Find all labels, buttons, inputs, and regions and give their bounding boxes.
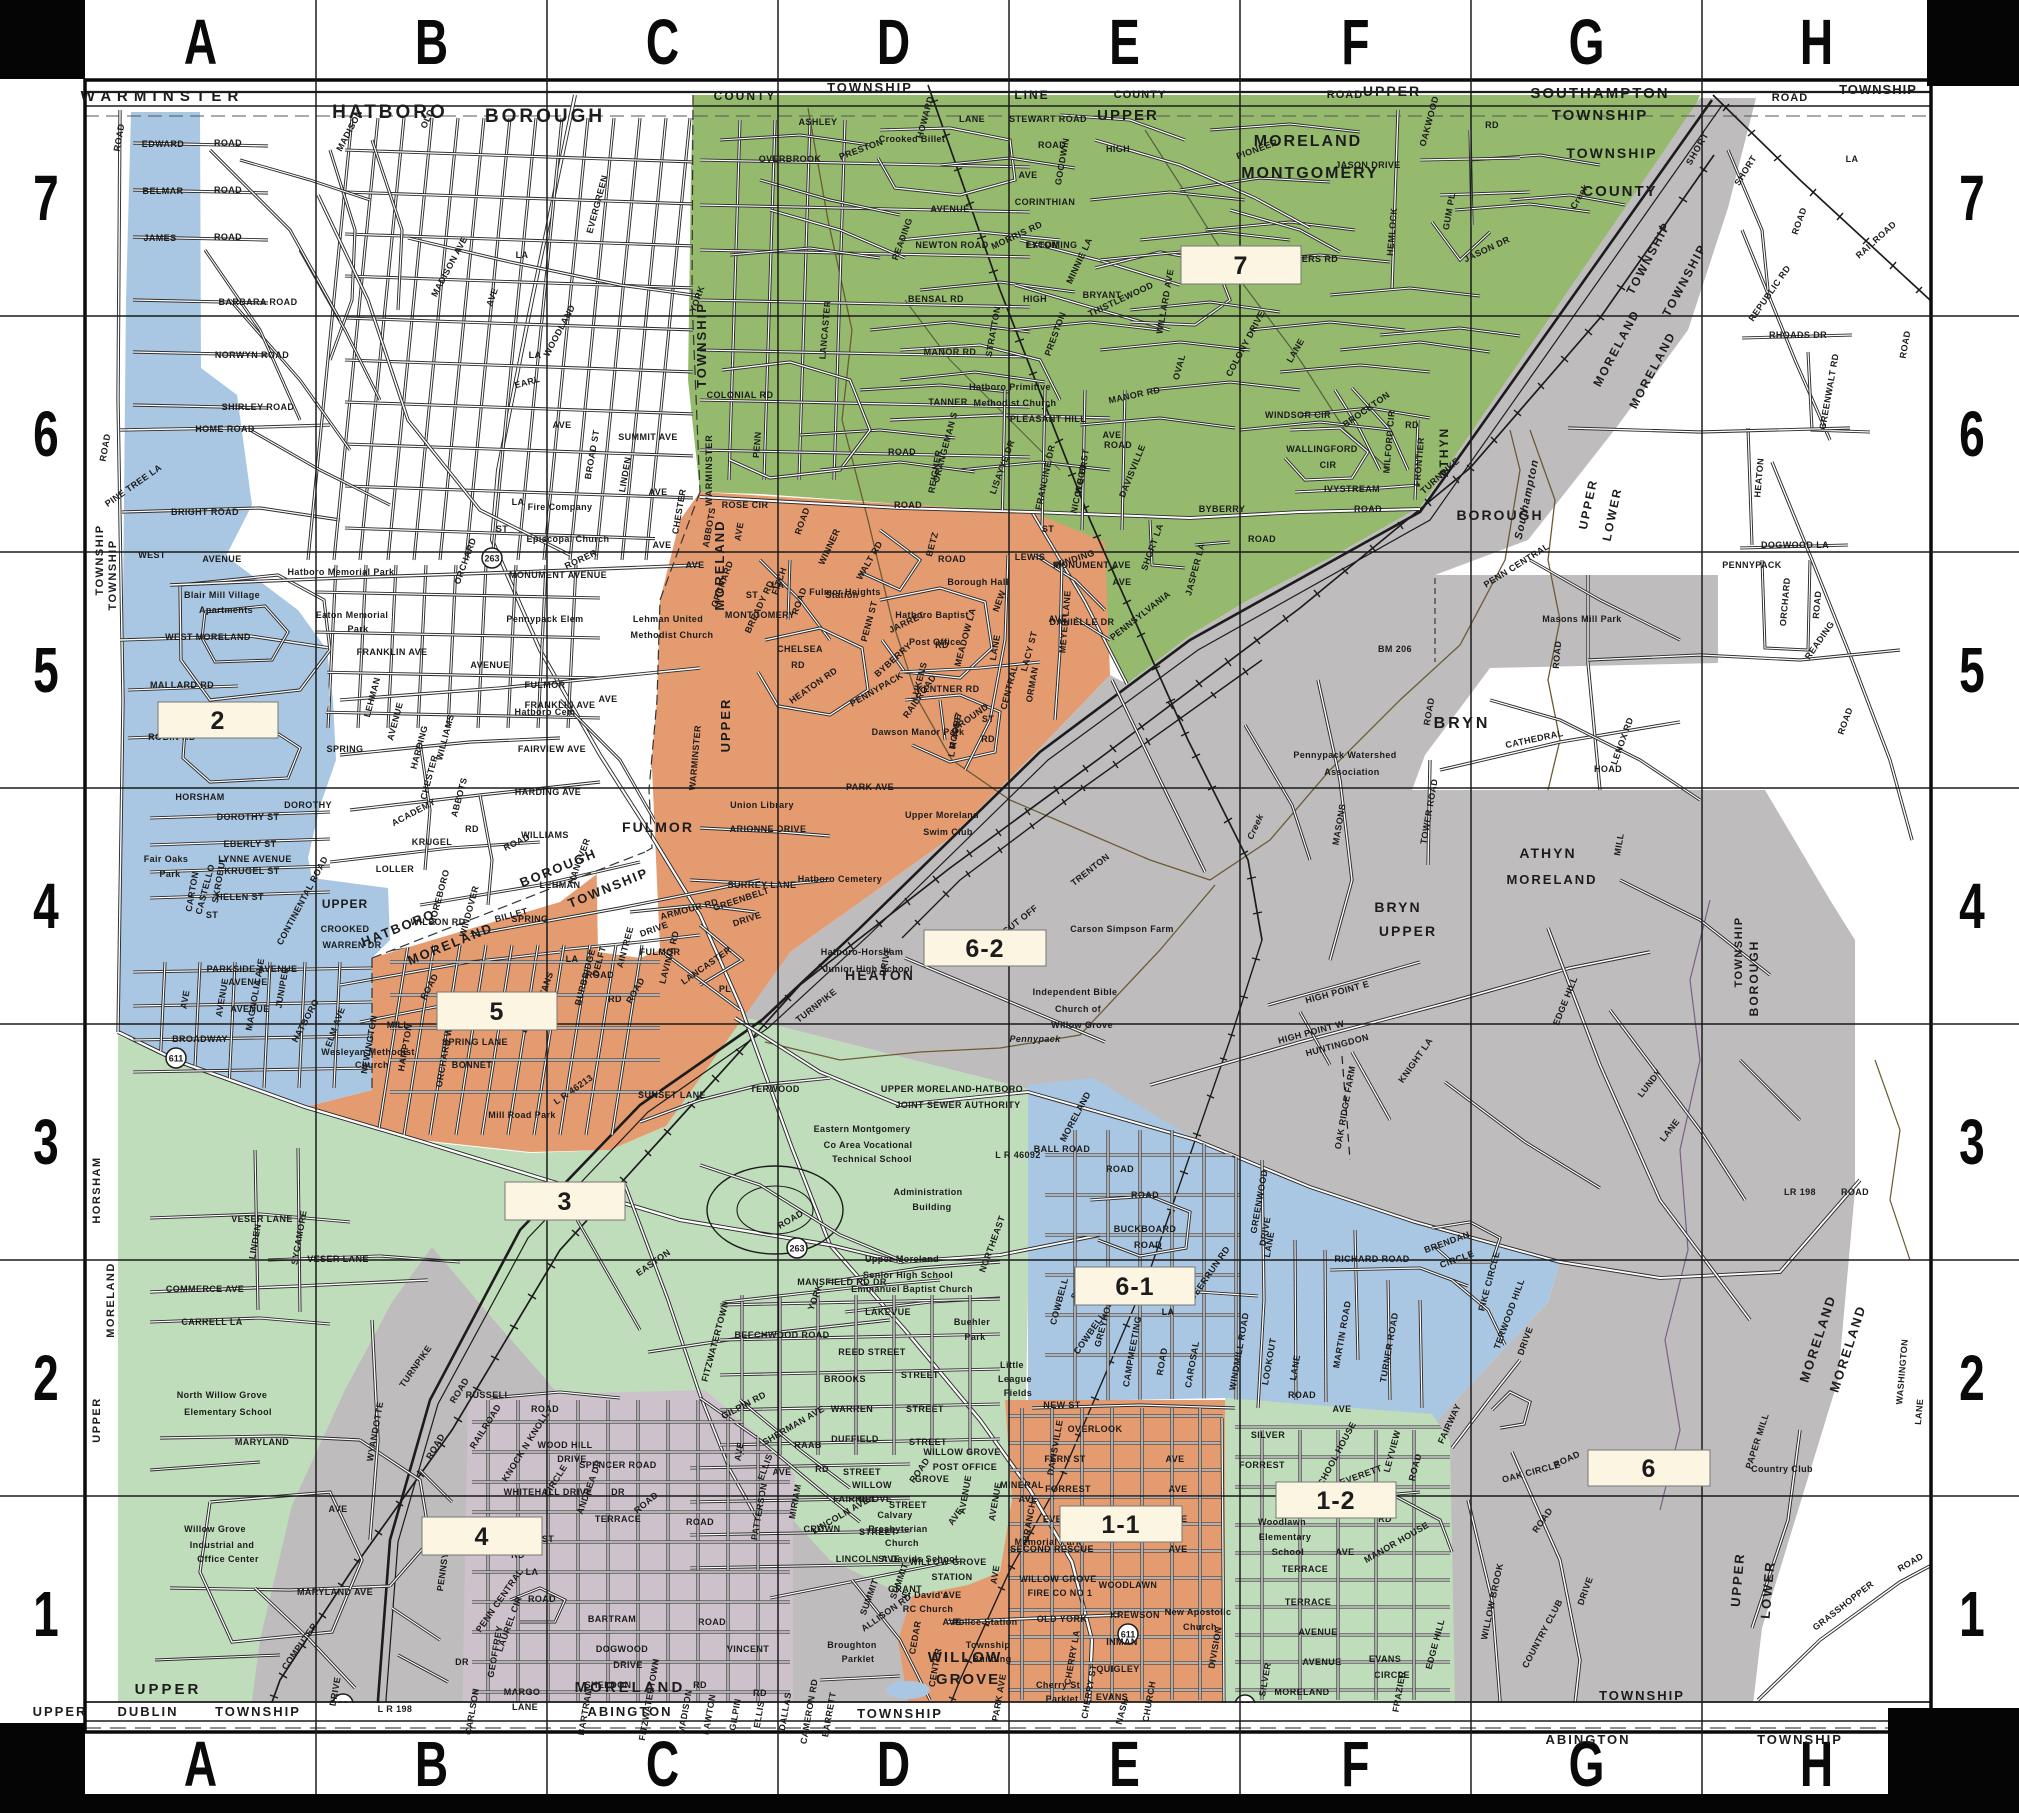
- svg-text:263: 263: [484, 554, 499, 564]
- svg-text:SOUTHAMPTON: SOUTHAMPTON: [1530, 85, 1669, 102]
- svg-text:BROADWAY: BROADWAY: [172, 1034, 228, 1044]
- svg-text:WEST MORELAND: WEST MORELAND: [165, 632, 251, 642]
- svg-text:AVE: AVE: [1165, 1454, 1184, 1464]
- svg-text:Police Station: Police Station: [952, 1617, 1017, 1627]
- svg-text:FORREST: FORREST: [1239, 1460, 1285, 1470]
- svg-text:RICHARD ROAD: RICHARD ROAD: [1334, 1254, 1409, 1264]
- svg-text:NORWYN ROAD: NORWYN ROAD: [215, 350, 289, 360]
- svg-text:RUSSELL: RUSSELL: [466, 1390, 511, 1400]
- svg-text:RD: RD: [1405, 420, 1419, 430]
- svg-text:AVE: AVE: [1102, 430, 1121, 440]
- svg-text:WILLOW: WILLOW: [852, 1480, 892, 1490]
- svg-text:B: B: [415, 1729, 448, 1800]
- svg-text:7: 7: [1234, 252, 1249, 280]
- svg-text:FAIRVIEW AVE: FAIRVIEW AVE: [518, 744, 586, 754]
- svg-text:BROOKS: BROOKS: [824, 1374, 866, 1384]
- svg-text:UPPER MORELAND-HATBORO: UPPER MORELAND-HATBORO: [881, 1084, 1023, 1094]
- svg-text:JASON DRIVE: JASON DRIVE: [1335, 160, 1400, 170]
- svg-text:ST: ST: [1042, 524, 1054, 534]
- svg-text:ROAD: ROAD: [938, 554, 966, 564]
- svg-text:Parklet: Parklet: [842, 1654, 875, 1664]
- svg-text:Association: Association: [1324, 767, 1379, 777]
- svg-text:ROAD: ROAD: [214, 185, 242, 195]
- svg-text:HOME ROAD: HOME ROAD: [195, 424, 255, 434]
- svg-text:6: 6: [1642, 1455, 1657, 1483]
- svg-text:AVE: AVE: [1048, 614, 1067, 624]
- svg-text:EXTON: EXTON: [1026, 240, 1059, 250]
- svg-text:PL: PL: [719, 984, 731, 994]
- svg-text:ROAD: ROAD: [888, 447, 916, 457]
- svg-text:BYBERRY: BYBERRY: [1199, 504, 1245, 514]
- svg-text:DOGWOOD: DOGWOOD: [596, 1644, 648, 1654]
- svg-text:INMAN: INMAN: [1106, 1637, 1138, 1647]
- svg-text:ROAD: ROAD: [1248, 534, 1276, 544]
- svg-text:GROVE: GROVE: [858, 1494, 893, 1504]
- svg-text:ROAD: ROAD: [214, 138, 242, 148]
- svg-text:WILLOW GROVE: WILLOW GROVE: [1019, 1574, 1096, 1584]
- svg-text:PLEASANT HILL: PLEASANT HILL: [1010, 414, 1086, 424]
- svg-text:OVERLOOK: OVERLOOK: [1068, 1424, 1123, 1434]
- svg-text:SUNSET LANE: SUNSET LANE: [638, 1090, 706, 1100]
- svg-text:4: 4: [33, 871, 59, 942]
- svg-text:TOWNSHIP: TOWNSHIP: [857, 1706, 943, 1721]
- svg-text:CROOKED: CROOKED: [321, 924, 370, 934]
- svg-text:DOROTHY: DOROTHY: [284, 800, 332, 810]
- svg-text:LA: LA: [512, 497, 525, 507]
- svg-text:E: E: [1109, 1729, 1140, 1800]
- svg-text:G: G: [1569, 7, 1605, 78]
- svg-text:Upper Moreland: Upper Moreland: [865, 1254, 939, 1264]
- svg-text:EVANS: EVANS: [1369, 1654, 1401, 1664]
- svg-text:ROAD: ROAD: [686, 1517, 714, 1527]
- svg-text:AVENUE: AVENUE: [1302, 1657, 1341, 1667]
- svg-text:MONUMENT AVENUE: MONUMENT AVENUE: [509, 570, 607, 580]
- svg-text:Blair Mill Village: Blair Mill Village: [184, 590, 260, 600]
- svg-text:6: 6: [1959, 399, 1985, 470]
- svg-text:SPRING: SPRING: [327, 744, 364, 754]
- svg-text:Fire Company: Fire Company: [528, 502, 593, 512]
- svg-text:TOWNSHIP: TOWNSHIP: [215, 1704, 301, 1719]
- svg-text:RHOADS DR: RHOADS DR: [1769, 330, 1827, 340]
- svg-text:Lehman United: Lehman United: [633, 614, 703, 624]
- svg-text:MANOR RD: MANOR RD: [924, 347, 977, 357]
- svg-text:Industrial and: Industrial and: [190, 1540, 255, 1550]
- svg-text:Carson Simpson Farm: Carson Simpson Farm: [1070, 924, 1174, 934]
- svg-text:BRYN: BRYN: [1434, 715, 1491, 732]
- svg-text:VINCENT: VINCENT: [727, 1644, 769, 1654]
- svg-text:HARDING AVE: HARDING AVE: [515, 787, 581, 797]
- svg-text:263: 263: [789, 1244, 804, 1254]
- svg-text:LAKEVUE: LAKEVUE: [865, 1307, 911, 1317]
- svg-text:WILLOW GROVE: WILLOW GROVE: [923, 1447, 1000, 1457]
- svg-text:ABINGTON: ABINGTON: [587, 1704, 672, 1719]
- svg-text:ROAD: ROAD: [1104, 440, 1132, 450]
- svg-text:Hatboro Cemetery: Hatboro Cemetery: [798, 874, 882, 884]
- svg-text:HORSHAM: HORSHAM: [91, 1156, 103, 1223]
- svg-text:Borough Hall: Borough Hall: [947, 577, 1008, 587]
- svg-text:H: H: [1800, 7, 1833, 78]
- svg-text:WALLINGFORD: WALLINGFORD: [1286, 444, 1357, 454]
- svg-text:UPPER: UPPER: [1379, 923, 1437, 939]
- svg-text:CHELSEA: CHELSEA: [777, 644, 823, 654]
- svg-text:AVENUE: AVENUE: [202, 554, 241, 564]
- svg-text:ROAD: ROAD: [1772, 92, 1808, 104]
- svg-text:7: 7: [1959, 163, 1985, 234]
- svg-text:ASHLEY: ASHLEY: [799, 117, 838, 127]
- svg-text:ROAD: ROAD: [1038, 140, 1066, 150]
- svg-text:3: 3: [558, 1188, 573, 1216]
- svg-text:Union Library: Union Library: [730, 800, 794, 810]
- svg-text:Little: Little: [1000, 1360, 1024, 1370]
- svg-text:EDWARD: EDWARD: [142, 139, 184, 149]
- svg-text:Fields: Fields: [1004, 1388, 1032, 1398]
- svg-text:2: 2: [1959, 1343, 1985, 1414]
- svg-text:1: 1: [33, 1579, 59, 1650]
- svg-text:6-1: 6-1: [1115, 1273, 1154, 1301]
- svg-text:F: F: [1341, 7, 1369, 78]
- svg-text:L R 198: L R 198: [378, 1704, 413, 1714]
- svg-text:LA: LA: [772, 580, 785, 590]
- svg-text:D: D: [877, 1729, 910, 1800]
- svg-text:E: E: [1109, 7, 1140, 78]
- svg-text:AVE: AVE: [1332, 1404, 1351, 1414]
- svg-text:FIRE CO NO 1: FIRE CO NO 1: [1028, 1588, 1093, 1598]
- svg-text:5: 5: [490, 998, 505, 1026]
- svg-text:Parklet: Parklet: [1046, 1694, 1079, 1704]
- svg-text:UPPER: UPPER: [91, 1397, 103, 1442]
- svg-text:DOGWOOD LA: DOGWOOD LA: [1761, 540, 1829, 550]
- svg-text:Buehler: Buehler: [954, 1317, 990, 1327]
- svg-text:BRIGHT ROAD: BRIGHT ROAD: [171, 507, 239, 517]
- svg-text:LA: LA: [529, 350, 542, 360]
- svg-text:POST OFFICE: POST OFFICE: [933, 1462, 997, 1472]
- svg-text:TANNER: TANNER: [928, 397, 967, 407]
- svg-text:LA: LA: [526, 1567, 539, 1577]
- svg-text:STREET: STREET: [909, 1437, 947, 1447]
- svg-text:Building: Building: [972, 1654, 1011, 1664]
- svg-text:WARMINSTER: WARMINSTER: [704, 434, 714, 506]
- svg-text:STATION: STATION: [932, 1572, 973, 1582]
- svg-text:BARBARA ROAD: BARBARA ROAD: [219, 297, 298, 307]
- svg-text:KREWSON: KREWSON: [1110, 1610, 1160, 1620]
- svg-text:AVE: AVE: [1112, 577, 1131, 587]
- svg-text:ROAD: ROAD: [894, 500, 922, 510]
- svg-text:Church: Church: [1183, 1622, 1217, 1632]
- svg-text:DR: DR: [611, 1487, 625, 1497]
- svg-text:MARYLAND AVE: MARYLAND AVE: [297, 1587, 373, 1597]
- svg-text:AVENUE: AVENUE: [228, 977, 267, 987]
- svg-text:DRIVE: DRIVE: [613, 1660, 643, 1670]
- svg-text:CORINTHIAN: CORINTHIAN: [1015, 197, 1076, 207]
- svg-text:Co Area Vocational: Co Area Vocational: [824, 1140, 913, 1150]
- svg-text:Broughton: Broughton: [827, 1640, 877, 1650]
- svg-text:D: D: [877, 7, 910, 78]
- svg-text:HIGH: HIGH: [1106, 144, 1130, 154]
- svg-text:1-1: 1-1: [1101, 1511, 1140, 1539]
- svg-text:ST: ST: [206, 910, 218, 920]
- svg-text:AVENUE: AVENUE: [1298, 1627, 1337, 1637]
- svg-text:Office Center: Office Center: [197, 1554, 259, 1564]
- svg-text:MINERAL: MINERAL: [1000, 1480, 1044, 1490]
- svg-text:NEWTON ROAD: NEWTON ROAD: [915, 240, 988, 250]
- svg-text:AVE: AVE: [652, 540, 671, 550]
- svg-text:ST: ST: [542, 1534, 554, 1544]
- svg-text:VESER LANE: VESER LANE: [231, 1214, 293, 1224]
- svg-text:ST: ST: [746, 590, 758, 600]
- svg-text:KRUGEL: KRUGEL: [412, 837, 453, 847]
- svg-text:3: 3: [33, 1107, 59, 1178]
- svg-text:C: C: [646, 7, 679, 78]
- svg-text:League: League: [998, 1374, 1032, 1384]
- svg-text:ST: ST: [982, 714, 994, 724]
- svg-text:Masons Mill Park: Masons Mill Park: [1542, 614, 1622, 624]
- svg-text:1-2: 1-2: [1316, 1487, 1355, 1515]
- svg-text:LINE: LINE: [1014, 88, 1049, 102]
- svg-text:RD: RD: [693, 1680, 707, 1690]
- svg-text:Park: Park: [159, 869, 181, 879]
- svg-text:WOOD HILL: WOOD HILL: [537, 1440, 592, 1450]
- svg-text:TOWNSHIP: TOWNSHIP: [1552, 107, 1649, 124]
- svg-text:TOWNSHIP: TOWNSHIP: [94, 524, 106, 595]
- svg-text:ROAD: ROAD: [528, 1594, 556, 1604]
- svg-text:BRYN: BRYN: [1374, 899, 1421, 915]
- svg-text:TERWOOD: TERWOOD: [750, 1084, 800, 1094]
- svg-text:AVE: AVE: [328, 1504, 347, 1514]
- svg-text:Crooked Billet: Crooked Billet: [879, 134, 946, 144]
- svg-text:GROVE: GROVE: [936, 1671, 1000, 1688]
- svg-text:BALL ROAD: BALL ROAD: [1034, 1144, 1091, 1154]
- svg-text:RD: RD: [935, 640, 949, 650]
- svg-text:A: A: [184, 7, 217, 78]
- svg-text:MARGO: MARGO: [504, 1687, 541, 1697]
- svg-text:RC Church: RC Church: [903, 1604, 954, 1614]
- svg-text:Technical School: Technical School: [832, 1154, 912, 1164]
- svg-text:ROAD: ROAD: [1106, 1164, 1134, 1174]
- svg-text:ROAD: ROAD: [1288, 1390, 1316, 1400]
- svg-text:Church: Church: [885, 1538, 919, 1548]
- svg-text:B: B: [415, 7, 448, 78]
- svg-text:GRANT: GRANT: [888, 1584, 922, 1594]
- svg-text:1: 1: [1959, 1579, 1985, 1650]
- svg-text:AVE: AVE: [552, 420, 571, 430]
- svg-text:AVE: AVE: [1168, 1544, 1187, 1554]
- svg-text:ROAD: ROAD: [1327, 89, 1363, 101]
- svg-text:MORELAND: MORELAND: [1506, 872, 1597, 887]
- svg-text:BM 206: BM 206: [1378, 644, 1412, 654]
- svg-text:F: F: [1341, 1729, 1369, 1800]
- svg-text:Hatboro Primitive: Hatboro Primitive: [969, 382, 1051, 392]
- svg-text:2: 2: [33, 1343, 59, 1414]
- svg-text:Eastern Montgomery: Eastern Montgomery: [814, 1124, 911, 1134]
- svg-text:BARTRAM: BARTRAM: [588, 1614, 636, 1624]
- svg-text:QUIGLEY: QUIGLEY: [1096, 1664, 1139, 1674]
- svg-text:TERRACE: TERRACE: [1282, 1564, 1328, 1574]
- svg-text:RD: RD: [981, 734, 995, 744]
- svg-text:Willow Grove: Willow Grove: [184, 1524, 246, 1534]
- svg-text:JAMES: JAMES: [143, 233, 176, 243]
- svg-text:LA: LA: [1162, 1307, 1175, 1317]
- svg-text:LA: LA: [516, 250, 529, 260]
- svg-text:Park: Park: [347, 624, 369, 634]
- svg-text:FRANKLIN AVE: FRANKLIN AVE: [357, 647, 428, 657]
- svg-text:6-2: 6-2: [965, 935, 1004, 963]
- svg-text:ROSE CIR: ROSE CIR: [722, 500, 769, 510]
- svg-text:Township: Township: [966, 1640, 1011, 1650]
- svg-text:W A R M I N S T E R: W A R M I N S T E R: [81, 88, 240, 105]
- svg-text:611: 611: [169, 1054, 184, 1064]
- svg-text:OLD YORK: OLD YORK: [1037, 1614, 1088, 1624]
- svg-text:HELEN ST: HELEN ST: [216, 892, 264, 902]
- svg-text:TOWNSHIP: TOWNSHIP: [1757, 1732, 1843, 1747]
- svg-text:AVE: AVE: [648, 487, 667, 497]
- svg-text:NEW ST: NEW ST: [1043, 1400, 1081, 1410]
- svg-text:PENNYPACK: PENNYPACK: [1722, 560, 1782, 570]
- svg-text:LINCOLN AVE: LINCOLN AVE: [836, 1554, 900, 1564]
- svg-text:COUNTY: COUNTY: [714, 89, 777, 103]
- svg-text:Hatboro Cem: Hatboro Cem: [515, 707, 576, 717]
- svg-text:Administration: Administration: [893, 1187, 962, 1197]
- svg-text:ST: ST: [496, 524, 508, 534]
- svg-text:4: 4: [1959, 871, 1985, 942]
- svg-text:HOAD: HOAD: [1594, 764, 1622, 774]
- svg-text:ROAD: ROAD: [1134, 1240, 1162, 1250]
- svg-text:SUMMIT AVE: SUMMIT AVE: [618, 432, 678, 442]
- svg-text:PARK AVE: PARK AVE: [846, 782, 894, 792]
- svg-text:CARRELL LA: CARRELL LA: [181, 1317, 242, 1327]
- svg-text:TOWNSHIP: TOWNSHIP: [1733, 916, 1745, 987]
- svg-text:LYNNE AVENUE: LYNNE AVENUE: [218, 854, 291, 864]
- svg-text:VESER LANE: VESER LANE: [307, 1254, 369, 1264]
- svg-text:ROAD: ROAD: [214, 232, 242, 242]
- svg-text:KRUGEL ST: KRUGEL ST: [224, 866, 280, 876]
- svg-text:TOWNSHIP: TOWNSHIP: [1839, 82, 1917, 97]
- svg-text:STREET: STREET: [906, 1404, 944, 1414]
- svg-text:COUNTY: COUNTY: [1582, 183, 1657, 200]
- svg-text:Elementary: Elementary: [1259, 1532, 1312, 1542]
- svg-text:AVE: AVE: [772, 1467, 791, 1477]
- svg-text:Junior High School: Junior High School: [823, 964, 913, 974]
- svg-text:UPPER: UPPER: [718, 698, 733, 753]
- svg-text:5: 5: [1959, 635, 1985, 706]
- svg-text:LR 198: LR 198: [1784, 1187, 1816, 1197]
- svg-text:New Apostolic: New Apostolic: [1165, 1607, 1232, 1617]
- svg-text:MALLARD RD: MALLARD RD: [150, 680, 214, 690]
- svg-text:WOODLAWN: WOODLAWN: [1099, 1580, 1158, 1590]
- svg-text:Willow Grove: Willow Grove: [1051, 1020, 1113, 1030]
- svg-text:AVE: AVE: [1018, 170, 1037, 180]
- svg-text:WARREN DR: WARREN DR: [322, 940, 381, 950]
- svg-text:Pennypack: Pennypack: [1009, 1034, 1061, 1044]
- svg-text:Upper Moreland: Upper Moreland: [905, 810, 979, 820]
- svg-text:ABINGTON: ABINGTON: [1545, 1732, 1630, 1747]
- svg-text:5: 5: [33, 635, 59, 706]
- svg-text:Elementary School: Elementary School: [184, 1407, 272, 1417]
- svg-text:CIR: CIR: [1320, 460, 1337, 470]
- svg-text:Apartments: Apartments: [199, 605, 253, 615]
- svg-text:Church of: Church of: [1055, 1004, 1102, 1014]
- svg-text:BUCKBOARD: BUCKBOARD: [1114, 1224, 1177, 1234]
- svg-text:LOLLER: LOLLER: [376, 864, 414, 874]
- svg-text:AVE: AVE: [685, 560, 704, 570]
- svg-text:SHIRLEY ROAD: SHIRLEY ROAD: [222, 402, 295, 412]
- svg-text:DOROTHY ST: DOROTHY ST: [217, 812, 280, 822]
- svg-text:DUBLIN: DUBLIN: [117, 1704, 178, 1719]
- svg-text:Eaton Memorial: Eaton Memorial: [316, 610, 389, 620]
- svg-text:Pennypack Watershed: Pennypack Watershed: [1293, 750, 1396, 760]
- svg-text:LA: LA: [1846, 154, 1859, 164]
- svg-text:AVENUE: AVENUE: [470, 660, 509, 670]
- svg-text:C: C: [646, 1729, 679, 1800]
- svg-text:HORSHAM: HORSHAM: [175, 792, 224, 802]
- svg-text:ROAD: ROAD: [1841, 1187, 1869, 1197]
- svg-text:AVE: AVE: [1335, 1547, 1354, 1557]
- svg-text:COMMERCE AVE: COMMERCE AVE: [166, 1284, 244, 1294]
- svg-text:MONUMENT AVE: MONUMENT AVE: [1053, 560, 1131, 570]
- svg-text:BONNET: BONNET: [452, 1060, 493, 1070]
- svg-text:ROAD: ROAD: [1354, 504, 1382, 514]
- svg-text:A: A: [184, 1729, 217, 1800]
- svg-text:6: 6: [33, 399, 59, 470]
- svg-text:Country Club: Country Club: [1751, 1464, 1813, 1474]
- svg-text:Methodist Church: Methodist Church: [974, 398, 1057, 408]
- svg-text:COUNTY: COUNTY: [1114, 89, 1166, 101]
- svg-text:ROAD: ROAD: [1131, 1190, 1159, 1200]
- svg-text:TOWNSHIP: TOWNSHIP: [107, 539, 119, 610]
- svg-text:RD: RD: [608, 994, 622, 1004]
- svg-text:Pennypack Elem: Pennypack Elem: [506, 614, 583, 624]
- svg-text:Swim Club: Swim Club: [923, 827, 973, 837]
- svg-text:TERRACE: TERRACE: [1285, 1597, 1331, 1607]
- svg-text:HIGH: HIGH: [1023, 294, 1047, 304]
- svg-text:TOWNSHIP: TOWNSHIP: [694, 302, 709, 388]
- svg-text:UPPER: UPPER: [33, 1704, 88, 1719]
- svg-text:BOROUGH: BOROUGH: [1747, 940, 1761, 1017]
- svg-text:FORREST: FORREST: [1045, 1484, 1091, 1494]
- svg-text:BENSAL RD: BENSAL RD: [908, 294, 964, 304]
- svg-text:North Willow Grove: North Willow Grove: [177, 1390, 268, 1400]
- svg-text:ATHYN: ATHYN: [1519, 845, 1576, 861]
- svg-text:Park: Park: [964, 1332, 986, 1342]
- svg-text:RAAB: RAAB: [794, 1440, 822, 1450]
- svg-text:TOWNSHIP: TOWNSHIP: [1599, 1688, 1685, 1703]
- svg-text:UPPER: UPPER: [322, 897, 368, 911]
- svg-text:STREET: STREET: [859, 1527, 897, 1537]
- svg-text:AVE: AVE: [1168, 1484, 1187, 1494]
- svg-text:TOWNSHIP: TOWNSHIP: [827, 80, 913, 95]
- svg-text:Emmanuel Baptist Church: Emmanuel Baptist Church: [851, 1284, 973, 1294]
- svg-text:LA: LA: [566, 954, 579, 964]
- svg-text:Senior High School: Senior High School: [863, 1270, 953, 1280]
- svg-text:FULMOR: FULMOR: [622, 819, 694, 835]
- svg-text:STEWART ROAD: STEWART ROAD: [1009, 114, 1087, 124]
- svg-text:SILVER: SILVER: [1251, 1430, 1285, 1440]
- svg-text:COLONIAL RD: COLONIAL RD: [707, 390, 774, 400]
- svg-text:MORELAND: MORELAND: [105, 1262, 117, 1338]
- svg-text:UPPER: UPPER: [135, 1681, 202, 1698]
- svg-text:Building: Building: [912, 1202, 951, 1212]
- svg-text:STREET: STREET: [889, 1500, 927, 1510]
- svg-text:4: 4: [475, 1523, 490, 1551]
- svg-text:Independent Bible: Independent Bible: [1033, 987, 1118, 997]
- svg-text:DR: DR: [455, 1657, 469, 1667]
- svg-text:BELMAR: BELMAR: [143, 186, 184, 196]
- svg-text:EBERLY ST: EBERLY ST: [223, 839, 276, 849]
- svg-text:ARIONNE DRIVE: ARIONNE DRIVE: [730, 824, 807, 834]
- svg-text:Hatboro Memorial Park: Hatboro Memorial Park: [288, 567, 396, 577]
- svg-text:Calvary: Calvary: [877, 1510, 912, 1520]
- svg-text:MARYLAND: MARYLAND: [235, 1437, 289, 1447]
- svg-text:RD: RD: [815, 1464, 829, 1474]
